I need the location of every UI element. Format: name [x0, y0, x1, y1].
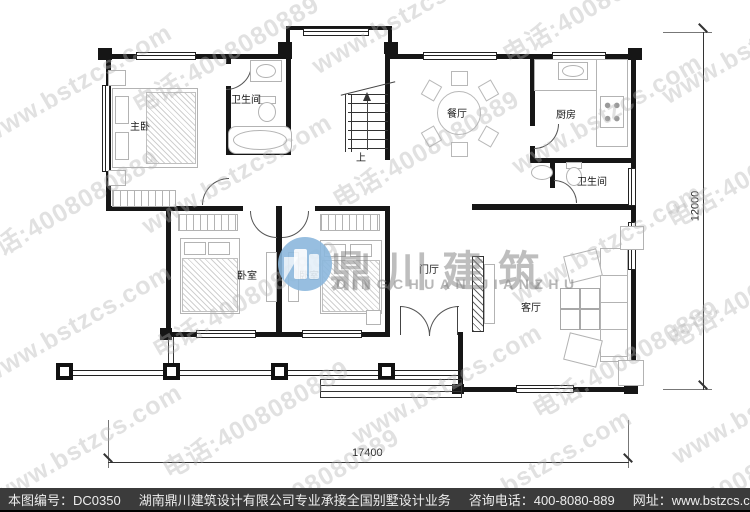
bathroom-door-arc [226, 64, 252, 90]
room-label-master-bedroom: 主卧 [130, 118, 150, 133]
dining-chair [451, 71, 468, 86]
bed-pillow [115, 132, 129, 160]
window [628, 168, 636, 206]
room-label-bathroom-top: 卫生间 [231, 91, 261, 106]
kitchen-stove [600, 96, 624, 128]
nightstand [108, 70, 126, 86]
stair-treads [348, 94, 388, 152]
wardrobe [112, 190, 176, 207]
wall-segment [384, 42, 398, 54]
bathtub-inner [233, 130, 287, 150]
dining-chair [421, 125, 442, 147]
bed-blanket [322, 260, 380, 312]
wall-segment [106, 54, 292, 59]
entry-door-leaf [457, 306, 458, 335]
dresser [266, 252, 277, 302]
bed-blanket [182, 258, 238, 312]
phone-line: 咨询电话：400-8080-889 [469, 490, 615, 509]
kitchen-sink-bowl [562, 65, 584, 77]
entry-door-leaf [400, 306, 401, 335]
wall-segment [278, 42, 292, 54]
shoe-cabinet [484, 264, 495, 324]
room-label-bedroom-right: 卧室 [299, 267, 319, 282]
bed-pillow [208, 242, 230, 255]
stair-arrow-head [363, 92, 371, 101]
porch-column [163, 363, 180, 380]
bed-blanket [146, 92, 196, 164]
entry-steps [320, 379, 462, 398]
bed-pillow [350, 244, 372, 257]
wall-segment [530, 158, 636, 163]
kitchen-door-arc [534, 124, 559, 149]
window [196, 330, 256, 338]
room-label-kitchen: 厨房 [556, 106, 576, 121]
wash-basin [531, 165, 553, 180]
bed-pillow [184, 242, 206, 255]
company-line: 湖南鼎川建筑设计有限公司专业承接全国别墅设计业务 [139, 490, 451, 509]
dining-chair [421, 79, 442, 101]
drawing-number: 本图编号：DC0350 [8, 490, 121, 509]
dining-chair [478, 125, 499, 147]
window [516, 385, 574, 393]
wardrobe [178, 214, 238, 231]
dim-line-height [703, 32, 704, 390]
bedroom-door-arc [250, 211, 277, 238]
bed-pillow [324, 244, 346, 257]
tv-wall-section [472, 256, 484, 332]
entry-door-arc [400, 306, 430, 336]
dim-extension-bottom [663, 389, 712, 390]
room-label-bedroom-left: 卧室 [237, 267, 257, 282]
bath-sink [256, 64, 276, 78]
armchair [563, 248, 603, 283]
footer-bar: 本图编号：DC0350 湖南鼎川建筑设计有限公司专业承接全国别墅设计业务 咨询电… [0, 488, 750, 512]
dim-label-height: 12000 [689, 189, 701, 224]
porch-column [271, 363, 288, 380]
bedroom-door-arc [282, 211, 309, 238]
window [423, 52, 497, 60]
plant [366, 310, 381, 325]
window [302, 330, 362, 338]
dim-extension-top [663, 32, 712, 33]
wall-segment [315, 206, 387, 211]
stair-arrow-line [367, 100, 368, 150]
wall-segment [166, 206, 171, 337]
side-table [618, 360, 644, 386]
side-table [620, 226, 644, 250]
window [136, 52, 196, 60]
bed-pillow [115, 96, 129, 124]
porch-column [378, 363, 395, 380]
window [102, 85, 110, 172]
screenshot-stage: 主卧 卫生间 餐厅 厨房 卫生间 卧室 卧室 门厅 客厅 上 17400 120… [0, 0, 750, 512]
porch-column [56, 363, 73, 380]
room-label-bathroom-right: 卫生间 [577, 173, 607, 188]
window [303, 28, 369, 36]
dining-chair [478, 79, 499, 101]
wardrobe [320, 214, 380, 231]
wall-segment [385, 206, 390, 337]
dim-label-width: 17400 [350, 447, 385, 459]
stair-rail [345, 94, 352, 152]
floor-plan: 主卧 卫生间 餐厅 厨房 卫生间 卧室 卧室 门厅 客厅 上 17400 120… [0, 0, 750, 488]
nightstand [108, 170, 126, 186]
wall-segment [98, 48, 112, 60]
dresser [288, 252, 299, 302]
master-door-arc [202, 178, 229, 205]
room-label-dining-room: 餐厅 [447, 105, 467, 120]
room-label-foyer: 门厅 [419, 261, 439, 276]
wall-segment [472, 204, 636, 210]
stairs-up-label: 上 [356, 149, 366, 164]
entry-door-arc [429, 306, 459, 336]
sofa-main [600, 248, 628, 362]
room-label-living-room: 客厅 [521, 299, 541, 314]
porch-railing [64, 370, 462, 376]
dining-chair [451, 142, 468, 157]
wall-segment [171, 206, 243, 211]
coffee-table [560, 288, 600, 330]
dim-line-width [108, 462, 629, 463]
website-line: 网址：www.bstzcs.com [633, 490, 750, 509]
armchair [563, 332, 603, 367]
wall-segment [226, 54, 231, 64]
wall-segment [628, 48, 642, 60]
